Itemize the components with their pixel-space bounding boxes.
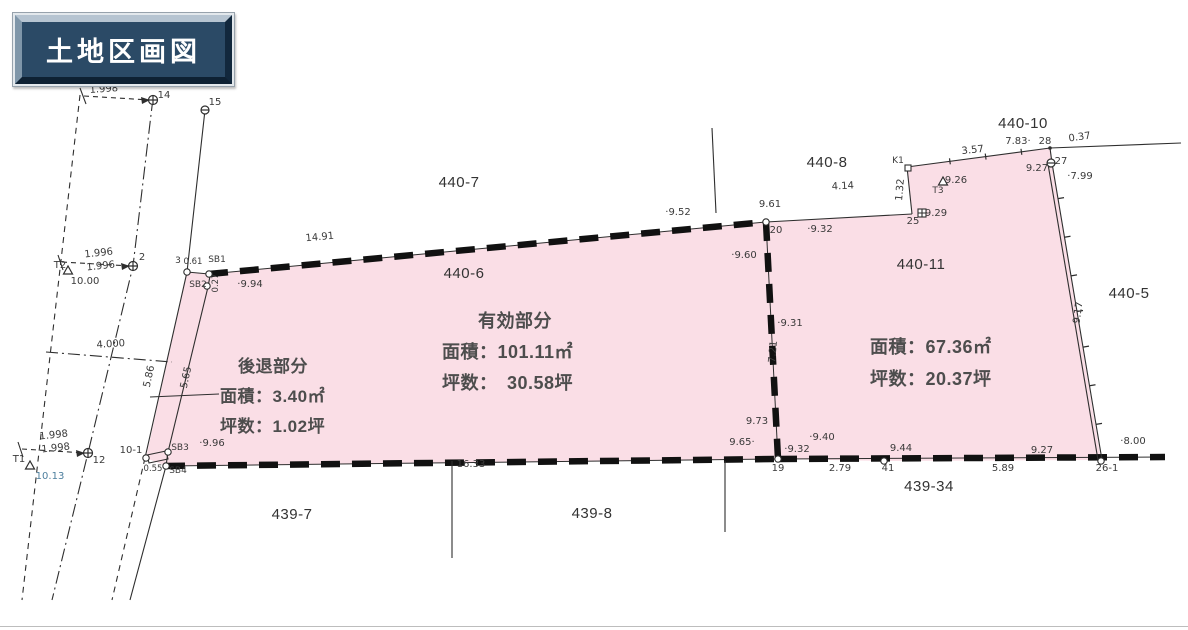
line-3	[112, 458, 145, 600]
parcel-label-440-8: 440-8	[807, 154, 848, 171]
bottom-border-line	[0, 626, 1188, 627]
survey-label-10-1-16: 10-1	[120, 445, 143, 456]
page-title: 土地区画図	[15, 15, 232, 84]
survey-label-4.000-8: 4.000	[96, 338, 125, 351]
top-edge-tick-0	[950, 158, 951, 164]
survey-label-SB3-18: SB3	[171, 443, 189, 453]
effective-area-info: 有効部分 面積：101.11㎡ 坪数： 30.58坪	[442, 306, 573, 399]
survey-label-9.61-30: 9.61	[759, 199, 781, 210]
survey-label-SB4-19: SB4	[169, 466, 187, 476]
survey-label-9.29-45: 9.29	[925, 208, 947, 219]
line-0	[22, 95, 80, 600]
right-edge-tick-1	[1065, 236, 1071, 237]
survey-label-19-38: 19	[772, 463, 785, 474]
survey-label-0.61-21: 0.61	[184, 257, 203, 267]
survey-label-26-1-59: 26-1	[1096, 463, 1119, 474]
parcel-label-440-7: 440-7	[439, 174, 480, 191]
effective-area-heading: 有効部分	[442, 306, 573, 337]
parcel-label-440-11: 440-11	[897, 256, 946, 273]
survey-label-7.21-34: 7.21	[767, 340, 780, 363]
survey-label-8.00-57: ·8.00	[1120, 436, 1145, 447]
page-title-box: 土地区画図	[12, 12, 235, 87]
parcel-440-11-area-value: 面積：67.36㎡	[870, 331, 992, 363]
survey-label-20-31: 20	[770, 225, 783, 236]
survey-label-0.37-52: 0.37	[1068, 131, 1092, 145]
survey-label-9.27-54: 9.27	[1026, 163, 1048, 174]
survey-label-SB1-22: SB1	[208, 255, 226, 265]
survey-label-T2-6: T2	[53, 260, 66, 271]
survey-label-5.86-9: 5.86	[142, 364, 157, 388]
survey-label-41-62: 41	[882, 463, 895, 474]
right-edge-tick-2	[1071, 275, 1077, 276]
setback-tsubo-value: 坪数：1.02坪	[220, 412, 325, 442]
setback-area-heading: 後退部分	[220, 352, 325, 382]
survey-label-7.83-50: 7.83·	[1005, 136, 1030, 147]
survey-label-16.33-29: 16.33	[457, 459, 486, 470]
survey-label-0.55-17: 0.55	[144, 464, 163, 474]
survey-label-5.89-60: 5.89	[992, 463, 1014, 474]
parcel-label-440-5: 440-5	[1109, 285, 1150, 302]
parcel-label-439-34: 439-34	[904, 478, 954, 495]
survey-label-9.26-48: 9.26	[945, 175, 967, 186]
right-edge-tick-5	[1090, 385, 1096, 386]
survey-label-14-1: 14	[158, 90, 171, 101]
survey-label-9.73-35: 9.73	[746, 416, 768, 427]
effective-area-value: 面積：101.11㎡	[442, 337, 573, 368]
survey-label-2-5: 2	[139, 252, 145, 263]
line-12	[46, 352, 172, 362]
parcel-label-439-7: 439-7	[272, 506, 313, 523]
top-edge-tick-2	[1021, 149, 1022, 155]
right-edge-tick-4	[1083, 346, 1089, 347]
survey-label-28-51: 28	[1039, 136, 1052, 147]
survey-label-1.996-4: 1.996	[86, 260, 116, 274]
point-20-marker	[763, 219, 769, 225]
land-plot-diagram: 1.99814151.9961.9962T210.004.0005.865.65…	[0, 0, 1188, 630]
survey-label-15-2: 15	[209, 97, 222, 108]
survey-label-14.91-27: 14.91	[305, 231, 334, 244]
parcel-label-440-6: 440-6	[444, 265, 485, 282]
survey-label-1.998-12: 1.998	[41, 442, 71, 456]
survey-label-7.99-55: ·7.99	[1067, 171, 1092, 182]
right-edge-tick-0	[1058, 198, 1064, 199]
point-3-marker	[184, 269, 190, 275]
survey-label-9.94-26: ·9.94	[237, 279, 262, 290]
survey-label-SB2-23: SB2	[189, 280, 207, 290]
survey-label-K1-43: K1	[892, 156, 904, 166]
survey-drawing: 1.99814151.9961.9962T210.004.0005.865.65…	[0, 0, 1188, 630]
survey-label-9.60-32: ·9.60	[731, 250, 756, 261]
survey-label-T3-47: T3	[931, 186, 943, 196]
survey-label-10.00-7: 10.00	[71, 276, 100, 287]
survey-label-9.32-42: ·9.32	[807, 224, 832, 235]
survey-label-3-20: 3	[175, 256, 181, 266]
survey-label-9.44-61: 9.44	[890, 443, 912, 454]
survey-label-9.27-58: 9.27	[1031, 445, 1053, 456]
survey-label-9.65-36: 9.65·	[729, 437, 754, 448]
survey-label-9.32-37: ·9.32	[784, 444, 809, 455]
parcel-label-440-10: 440-10	[998, 115, 1048, 132]
survey-label-1.996-3: 1.996	[84, 247, 114, 261]
point-k1-marker	[905, 165, 911, 171]
survey-label-9.17-56: 9.17	[1072, 301, 1086, 325]
right-edge-tick-6	[1096, 423, 1102, 424]
survey-label-27-53: 27	[1055, 156, 1068, 167]
parcel-440-11-info: 面積：67.36㎡ 坪数：20.37坪	[870, 331, 992, 395]
survey-label-25-46: 25	[907, 216, 920, 227]
point-19-marker	[775, 456, 781, 462]
setback-area-value: 面積：3.40㎡	[220, 382, 325, 412]
line-6	[84, 96, 150, 100]
survey-label-12-13: 12	[93, 455, 106, 466]
survey-label-4.14-41: 4.14	[831, 180, 854, 192]
parcel-label-439-8: 439-8	[572, 505, 613, 522]
survey-label-0.27-24: 0.27	[211, 274, 221, 293]
survey-label-T1-14: T1	[12, 454, 25, 465]
survey-label-2.79-40: 2.79	[829, 463, 851, 474]
survey-label-9.52-28: ·9.52	[665, 207, 690, 218]
survey-label-10.13-15: 10.13	[36, 471, 65, 482]
survey-label-1.998-11: 1.998	[39, 429, 69, 443]
point-10-1-marker	[143, 455, 149, 461]
point-t1-marker	[26, 461, 35, 469]
line-15	[712, 128, 716, 213]
top-edge-tick-1	[985, 154, 986, 160]
parcel-440-11-tsubo-value: 坪数：20.37坪	[870, 363, 992, 395]
effective-tsubo-value: 坪数： 30.58坪	[442, 368, 573, 399]
survey-label-9.40-39: ·9.40	[809, 432, 834, 443]
survey-label-9.31-33: ·9.31	[777, 318, 802, 329]
setback-area-info: 後退部分 面積：3.40㎡ 坪数：1.02坪	[220, 352, 325, 442]
survey-label-1.32-44: 1.32	[894, 178, 907, 201]
survey-label-3.57-49: 3.57	[961, 144, 984, 157]
